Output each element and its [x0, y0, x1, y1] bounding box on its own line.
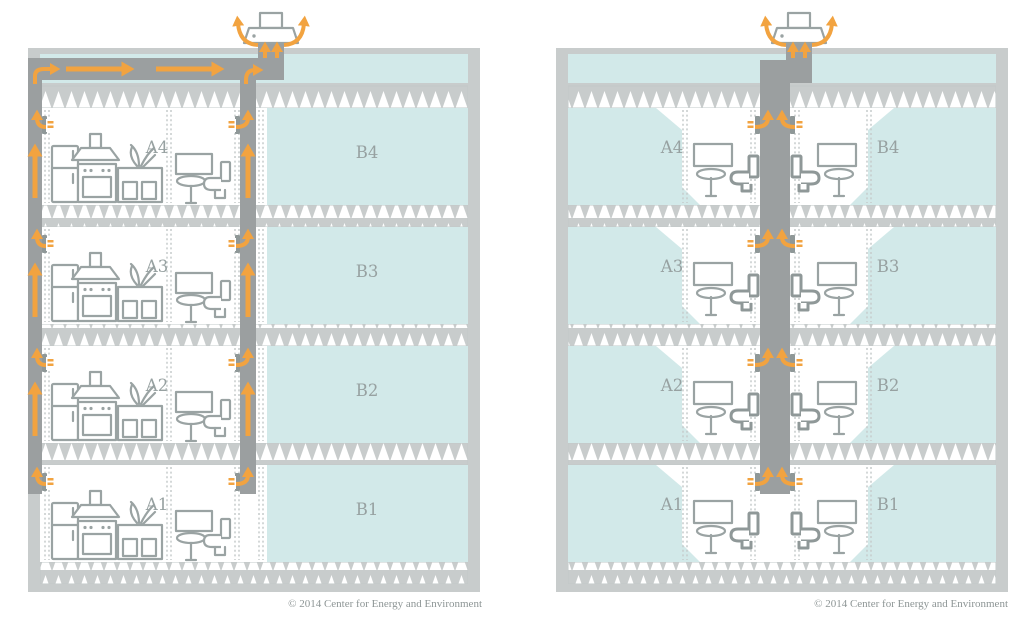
- unit-b-label: B4: [356, 143, 379, 162]
- unit-b-label: B4: [877, 138, 900, 157]
- copyright-text: © 2014 Center for Energy and Environment: [288, 598, 482, 610]
- building-foundation: [28, 584, 480, 592]
- unit-b-label: B1: [877, 495, 900, 514]
- right-building-diagram: A4 B4 A3 B3 A2 B2: [556, 13, 1008, 610]
- fan-riser-duct: [786, 40, 812, 80]
- floor-truss-band: [40, 562, 468, 584]
- unit-a-label: A2: [145, 376, 168, 395]
- shaft-void-floor1: [760, 494, 790, 562]
- fan-riser-duct: [258, 40, 284, 80]
- unit-b-label: B3: [877, 257, 900, 276]
- unit-a-label: A1: [145, 495, 168, 514]
- airflow-diagrams-canvas: A4 B4 A3 B3 A2 B2 A1 B1: [0, 0, 1024, 632]
- unit-a-label: A4: [145, 138, 168, 157]
- unit-b-label: B3: [356, 262, 379, 281]
- ventilation-diagram-page: A4 B4 A3 B3 A2 B2 A1 B1: [0, 0, 1024, 632]
- unit-b-label: B2: [356, 381, 379, 400]
- building-foundation: [556, 584, 1008, 592]
- building-roofline: [28, 48, 480, 54]
- building-frame-right-wall: [468, 48, 480, 592]
- unit-a-label: A4: [660, 138, 683, 157]
- building-frame-left-wall: [556, 48, 568, 592]
- copyright-text: © 2014 Center for Energy and Environment: [814, 598, 1008, 610]
- unit-a-label: A3: [145, 257, 168, 276]
- unit-a-label: A3: [660, 257, 683, 276]
- building-frame-right-wall: [996, 48, 1008, 592]
- unit-b-label: B1: [356, 500, 379, 519]
- unit-a-label: A2: [660, 376, 683, 395]
- left-building-diagram: A4 B4 A3 B3 A2 B2 A1 B1: [28, 13, 482, 610]
- building-roofline: [556, 48, 1008, 54]
- unit-a-label: A1: [660, 495, 683, 514]
- floor-truss-band: [568, 562, 996, 584]
- unit-b-label: B2: [877, 376, 900, 395]
